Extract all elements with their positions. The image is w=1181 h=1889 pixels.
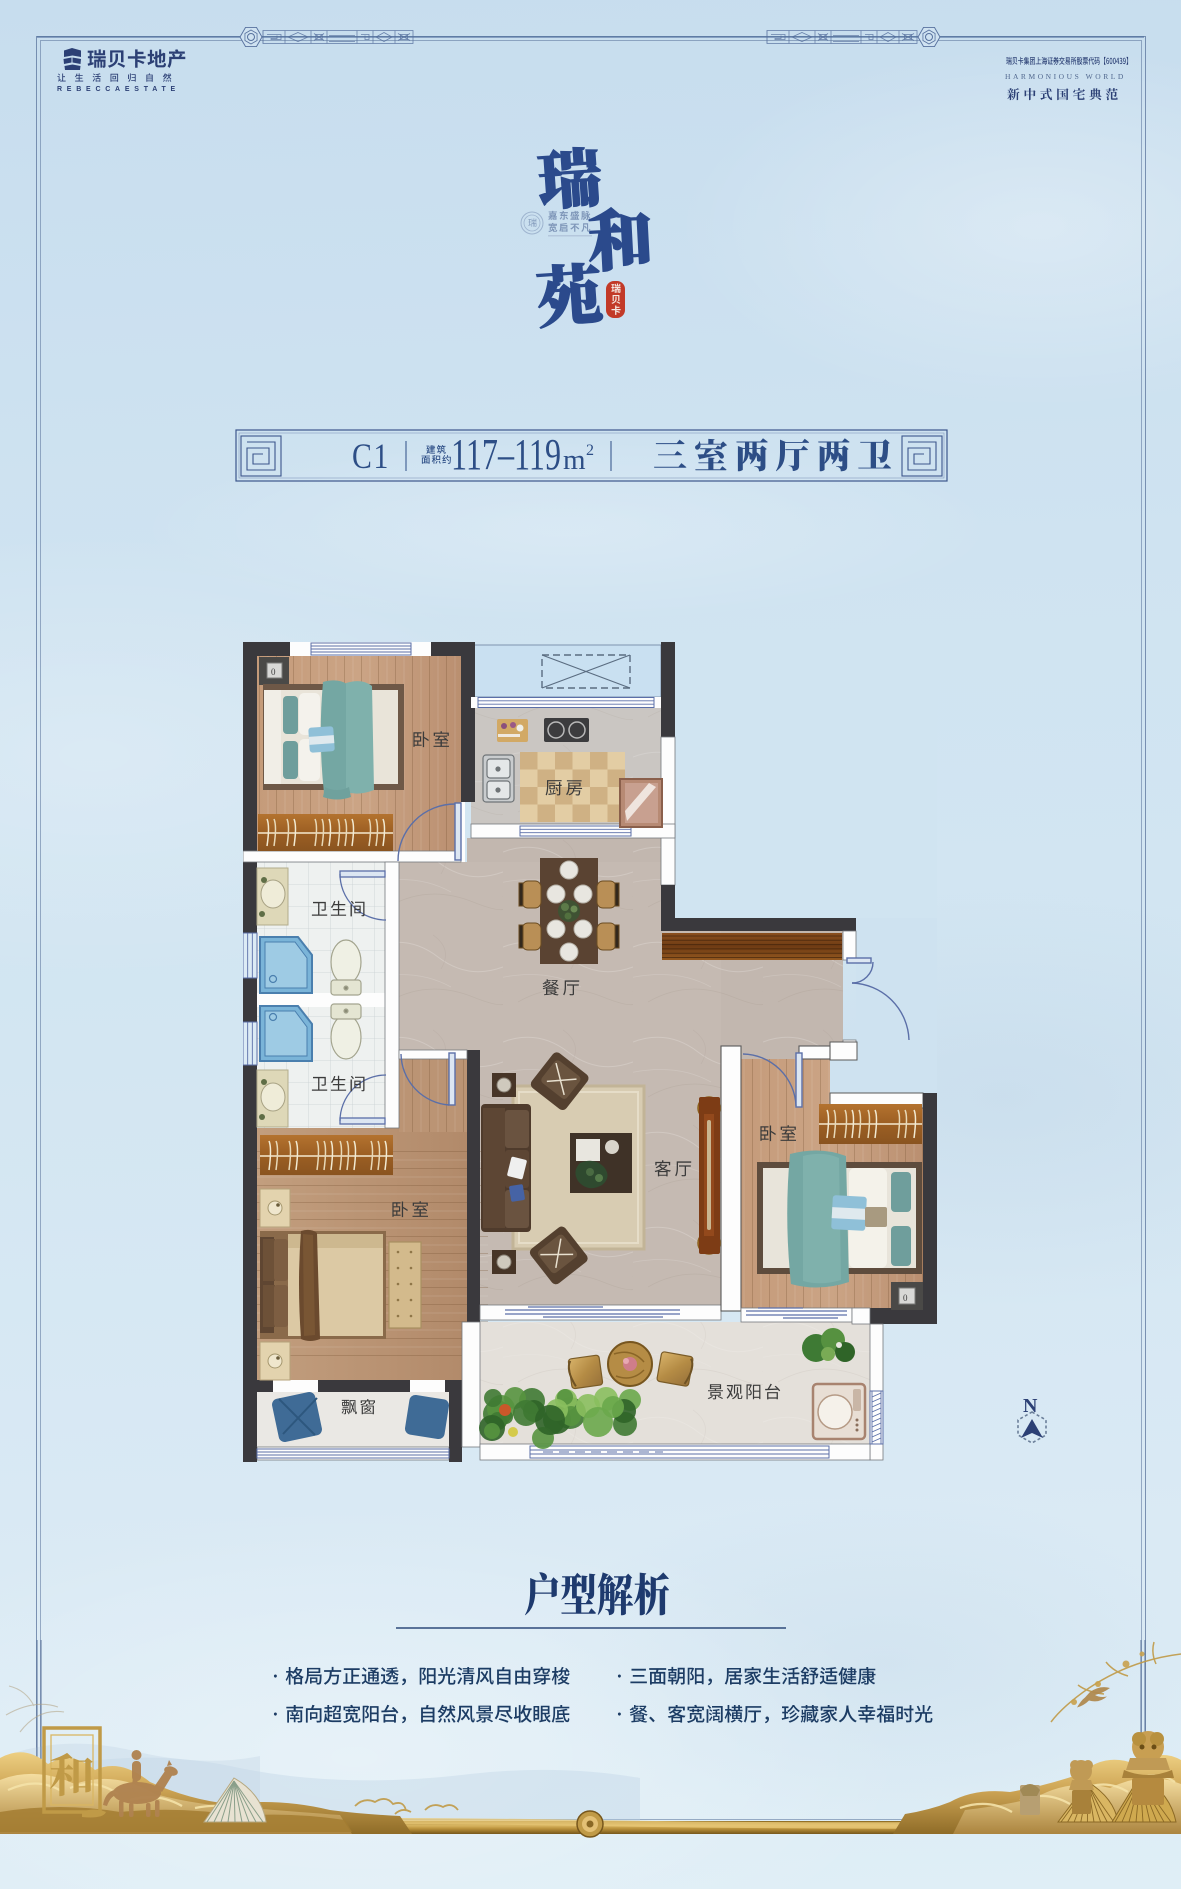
svg-text:C1: C1 — [352, 436, 390, 476]
svg-text:HARMONIOUS WORLD: HARMONIOUS WORLD — [1005, 72, 1126, 81]
svg-text:2: 2 — [586, 442, 594, 459]
svg-text:0: 0 — [903, 1293, 908, 1303]
svg-text:REBECCAESTATE: REBECCAESTATE — [57, 86, 180, 92]
svg-text:117–119: 117–119 — [451, 430, 561, 479]
svg-text:m: m — [563, 444, 586, 476]
svg-text:0: 0 — [271, 667, 276, 677]
